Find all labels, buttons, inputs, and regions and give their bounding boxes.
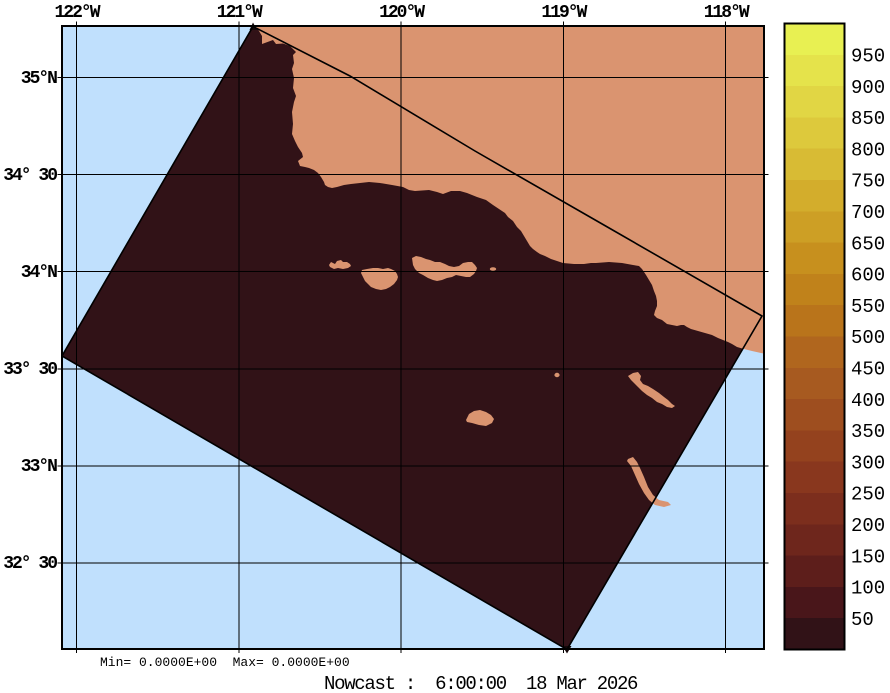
svg-text:600: 600 (851, 265, 885, 287)
svg-text:700: 700 (851, 202, 885, 224)
svg-text:800: 800 (851, 139, 885, 161)
svg-text:120°W: 120°W (379, 3, 425, 23)
svg-text:450: 450 (851, 359, 885, 381)
svg-text:Nowcast : 6:00:00 18 Mar 202: Nowcast : 6:00:00 18 Mar 2026 (324, 673, 638, 693)
svg-text:350: 350 (851, 421, 885, 443)
svg-text:100: 100 (851, 578, 885, 600)
svg-text:32° 30: 32° 30 (3, 554, 57, 574)
svg-text:900: 900 (851, 77, 885, 99)
svg-text:550: 550 (851, 296, 885, 318)
svg-text:300: 300 (851, 452, 885, 474)
svg-text:500: 500 (851, 327, 885, 349)
svg-text:Min= 0.0000E+00 Max= 0.0000E+: Min= 0.0000E+00 Max= 0.0000E+00 (100, 655, 350, 670)
svg-text:33°N: 33°N (21, 457, 57, 477)
svg-text:122°W: 122°W (54, 3, 100, 23)
svg-text:34° 30: 34° 30 (3, 166, 57, 186)
svg-text:35°N: 35°N (21, 69, 57, 89)
svg-text:33° 30: 33° 30 (3, 360, 57, 380)
svg-text:150: 150 (851, 546, 885, 568)
svg-text:121°W: 121°W (217, 3, 263, 23)
svg-text:850: 850 (851, 108, 885, 130)
svg-text:250: 250 (851, 484, 885, 506)
svg-text:750: 750 (851, 171, 885, 193)
svg-text:400: 400 (851, 390, 885, 412)
svg-text:50: 50 (851, 609, 874, 631)
svg-text:119°W: 119°W (541, 3, 587, 23)
svg-text:34°N: 34°N (21, 263, 57, 283)
svg-text:200: 200 (851, 515, 885, 537)
svg-text:950: 950 (851, 46, 885, 68)
svg-text:118°W: 118°W (704, 3, 750, 23)
svg-text:650: 650 (851, 233, 885, 255)
